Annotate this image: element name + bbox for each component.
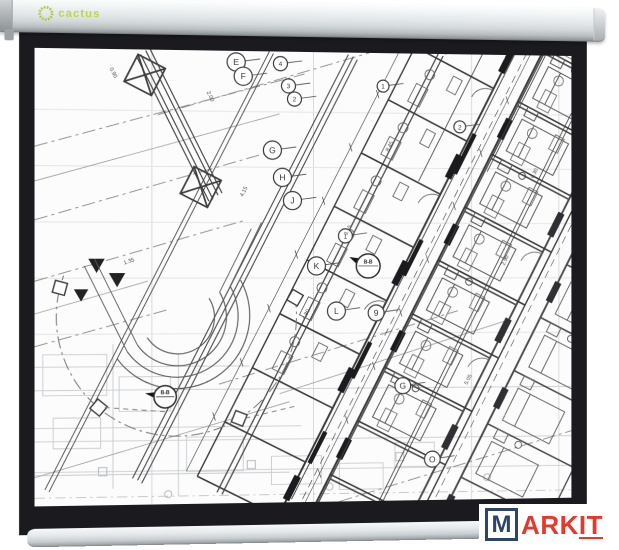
watermark-it: IT — [579, 512, 603, 538]
screen-frame: EF432GHJ1KL129GO4.158.453.154.805.052.90… — [19, 28, 587, 535]
casing-bracket — [4, 29, 13, 40]
product-photo: EF432GHJ1KL129GO4.158.453.154.805.052.90… — [0, 0, 619, 550]
brand-logo: cactus — [38, 5, 101, 22]
svg-text:B-B: B-B — [364, 260, 373, 266]
svg-text:H: H — [279, 172, 285, 182]
svg-text:K: K — [314, 261, 320, 271]
section-marker: B-B — [145, 386, 176, 409]
blueprint-svg: EF432GHJ1KL129GO4.158.453.154.805.052.90… — [35, 48, 572, 507]
projection-screen: EF432GHJ1KL129GO4.158.453.154.805.052.90… — [0, 0, 605, 544]
dimension-label: 5.05 — [464, 374, 474, 386]
svg-text:J: J — [290, 196, 294, 206]
svg-text:G: G — [400, 381, 407, 391]
svg-text:9: 9 — [374, 308, 379, 318]
corridor-wing — [74, 48, 222, 302]
cactus-logo-icon — [38, 5, 55, 22]
svg-text:E: E — [233, 57, 239, 67]
svg-text:O: O — [429, 454, 436, 464]
dimension-label: 1.35 — [123, 257, 135, 266]
svg-text:1: 1 — [381, 84, 385, 91]
svg-text:2: 2 — [293, 97, 297, 104]
watermark-m-box: M — [485, 508, 518, 541]
dimension-label: 2.90 — [501, 255, 511, 267]
watermark-ark: ARK — [521, 512, 579, 538]
svg-text:2: 2 — [458, 124, 462, 131]
markit-watermark: M ARK IT — [479, 504, 610, 548]
svg-text:F: F — [241, 71, 246, 81]
screen-surface: EF432GHJ1KL129GO4.158.453.154.805.052.90… — [35, 48, 572, 507]
svg-text:L: L — [334, 306, 339, 316]
setting-out-circle — [56, 276, 296, 438]
dimension-label: 4.15 — [239, 186, 249, 198]
svg-text:3: 3 — [287, 83, 291, 90]
svg-text:4: 4 — [279, 61, 283, 68]
section-marker: B-B — [349, 254, 380, 278]
dimension-label: 0.90 — [108, 67, 118, 79]
svg-text:B-B: B-B — [161, 390, 170, 396]
casing-end-cap-left — [0, 0, 13, 31]
brand-logo-text: cactus — [58, 8, 100, 20]
casing-end-cap-right — [593, 8, 604, 41]
svg-text:G: G — [269, 145, 276, 155]
ramp-arcs — [84, 222, 261, 389]
